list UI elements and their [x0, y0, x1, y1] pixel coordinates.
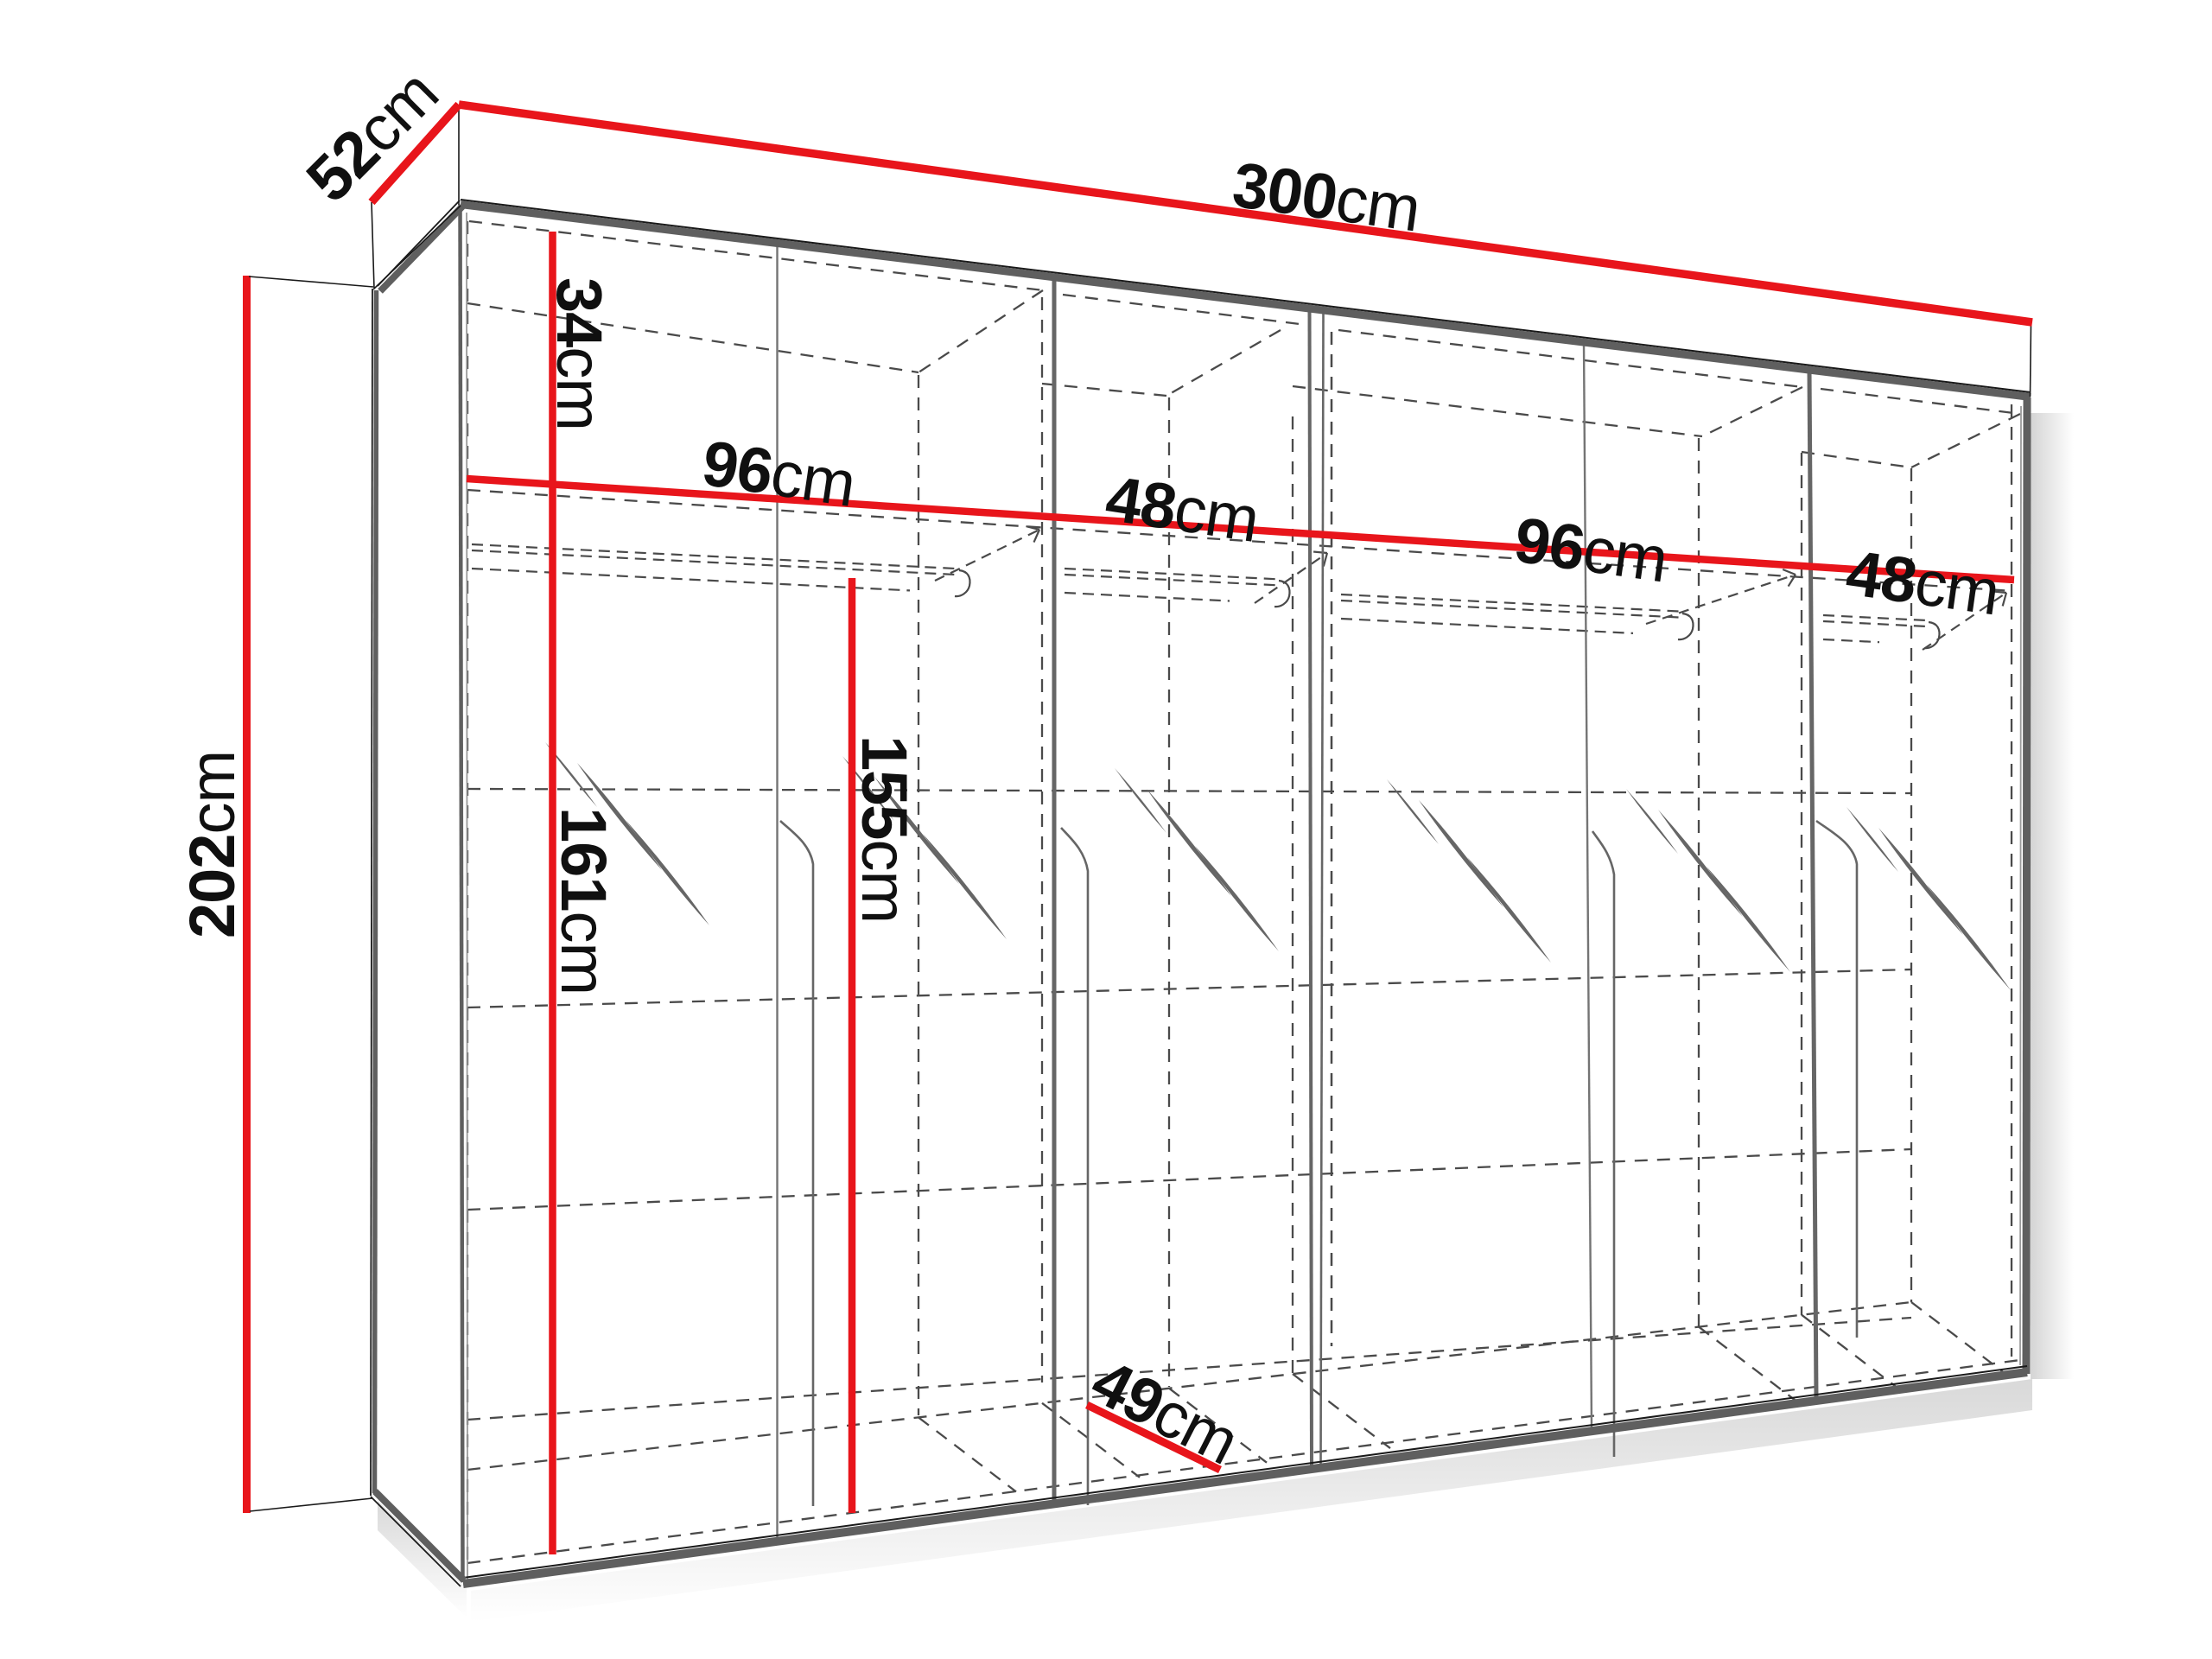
svg-text:155cm: 155cm — [849, 735, 920, 923]
svg-text:161cm: 161cm — [548, 807, 620, 995]
svg-text:202cm: 202cm — [176, 751, 248, 938]
svg-text:34cm: 34cm — [543, 277, 615, 430]
